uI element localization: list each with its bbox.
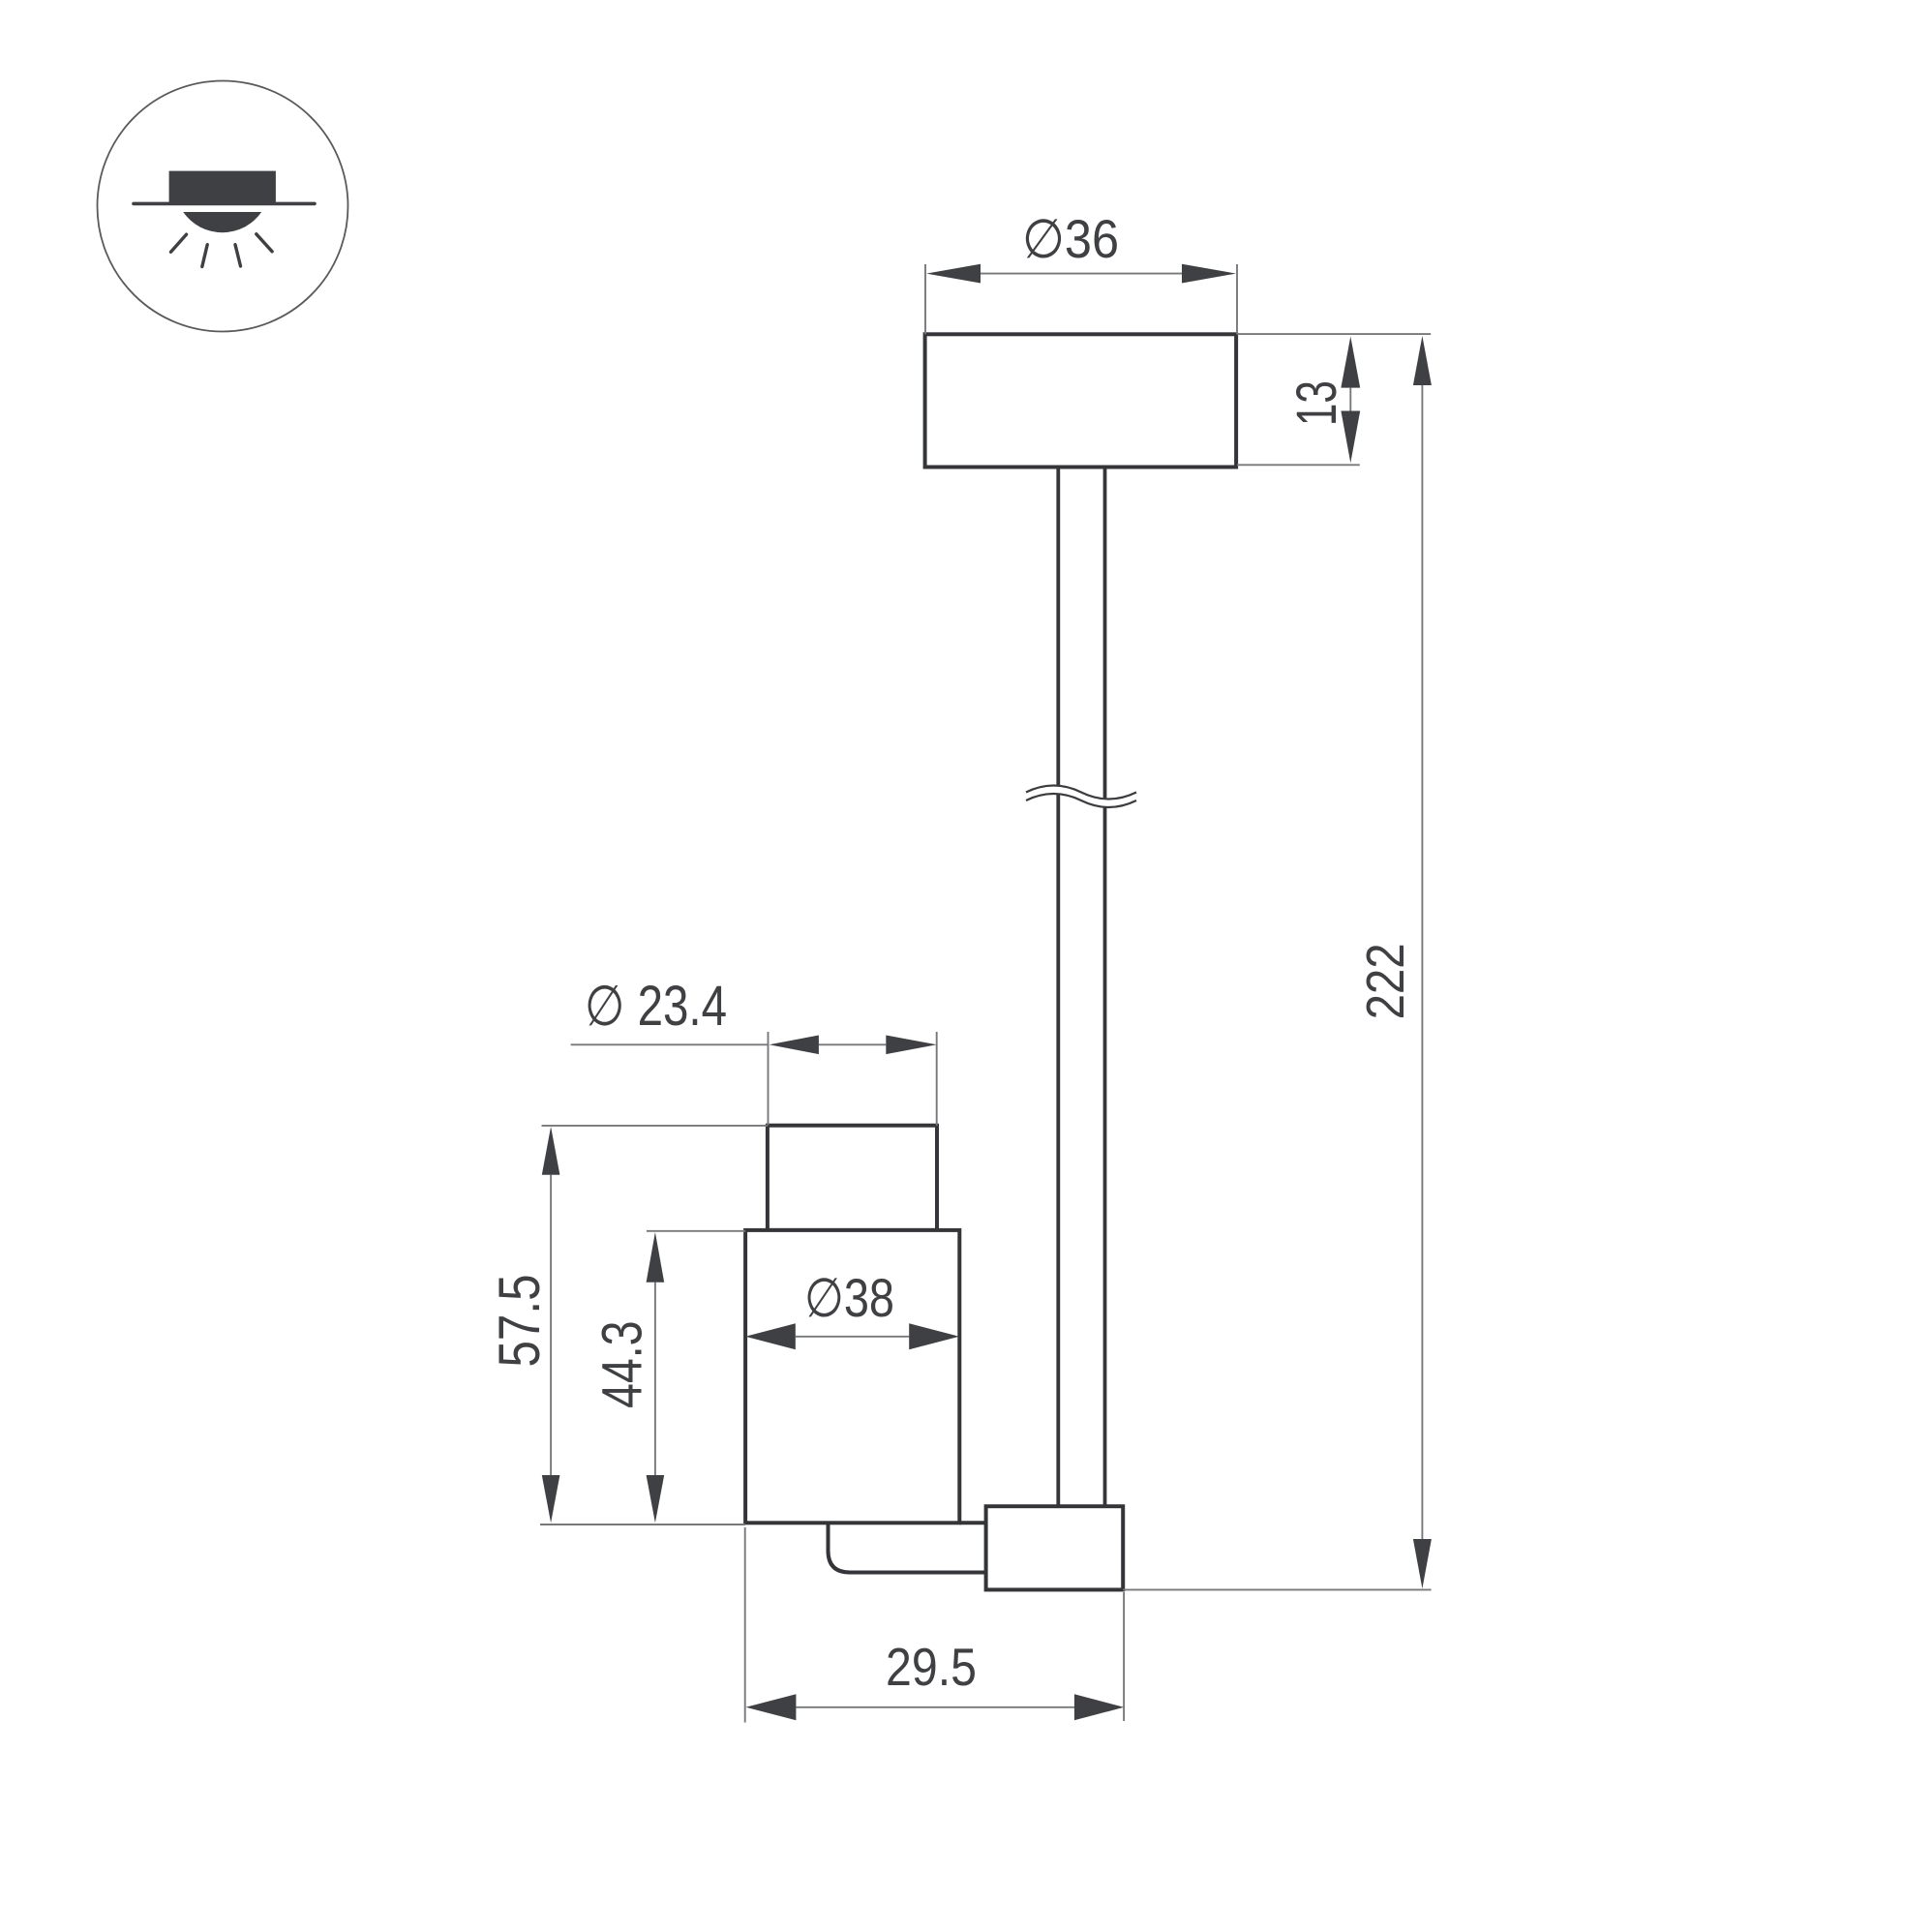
svg-text:13: 13 [1285, 380, 1348, 426]
svg-text:57.5: 57.5 [487, 1275, 552, 1368]
svg-text:222: 222 [1355, 943, 1415, 1019]
svg-text:∅ 23.4: ∅ 23.4 [585, 975, 727, 1038]
svg-text:∅38: ∅38 [804, 1267, 894, 1328]
svg-text:29.5: 29.5 [886, 1637, 977, 1697]
svg-text:44.3: 44.3 [590, 1321, 653, 1409]
svg-text:∅36: ∅36 [1022, 208, 1119, 269]
